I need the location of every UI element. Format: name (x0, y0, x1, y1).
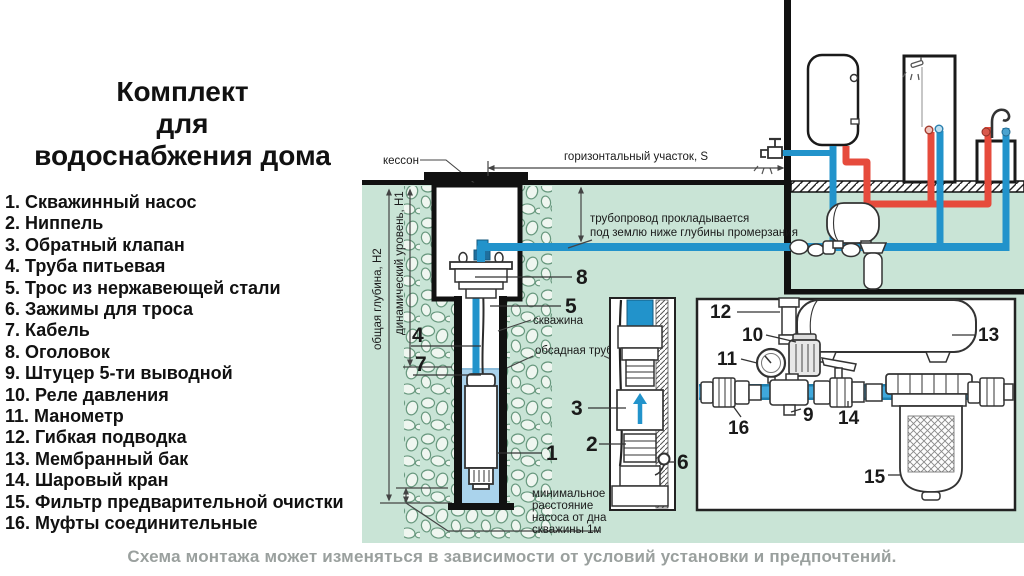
basement-bottom-line (784, 289, 1024, 295)
callout-3: 3 (571, 397, 583, 420)
well-bottom (448, 503, 514, 510)
caisson-label: кессон (383, 155, 419, 167)
inset-pump-top (620, 466, 660, 486)
pump-station-detail-panel: 12 10 11 13 16 9 14 15 (697, 298, 1015, 510)
footer-note: Схема монтажа может изменяться в зависим… (0, 547, 1024, 567)
callout-7: 7 (415, 353, 427, 376)
callout-11: 11 (717, 349, 738, 370)
inset-pipe (627, 300, 653, 326)
small-filter (860, 243, 886, 289)
callout-16: 16 (728, 418, 749, 439)
callout-15: 15 (864, 467, 886, 488)
outdoor-faucet-icon (754, 139, 782, 174)
page: Комплект для водоснабжения дома 1. Скваж… (0, 0, 1024, 576)
boiler (808, 55, 859, 145)
inset-coupling (618, 326, 662, 348)
min-distance-line2: расстояние (532, 500, 593, 512)
callout-1: 1 (546, 442, 558, 465)
horizontal-section-label: горизонтальный участок, S (564, 151, 708, 163)
callout-5: 5 (565, 295, 577, 318)
callout-10: 10 (742, 325, 763, 346)
callout-9: 9 (803, 405, 814, 426)
callout-6: 6 (677, 451, 689, 474)
callout-13: 13 (978, 325, 999, 346)
water-supply-diagram: общая глубина, Н2 динамический уровень, … (0, 0, 1024, 576)
dynamic-level-label: динамический уровень, Н1 (394, 191, 406, 335)
horizontal-section-dimension (488, 161, 783, 176)
well (448, 288, 514, 510)
min-distance-line4: скважины 1м (532, 524, 601, 536)
casing-pipe-label: обсадная труба (535, 345, 620, 357)
pump-cable (482, 292, 483, 378)
min-distance-line1: минимальное (532, 488, 605, 500)
small-membrane-tank (827, 203, 879, 248)
total-depth-label: общая глубина, Н2 (372, 248, 384, 350)
casing-right-wall (499, 296, 507, 505)
membrane-tank (797, 300, 976, 362)
callout-2: 2 (586, 433, 598, 456)
pump-top-inset (610, 298, 675, 510)
callout-4: 4 (412, 324, 424, 347)
submersible-pump (465, 374, 497, 489)
callout-12: 12 (710, 302, 731, 323)
frost-note-line1: трубопровод прокладывается (590, 213, 749, 225)
callout-14: 14 (838, 408, 860, 429)
inset-cable-clamp (659, 454, 670, 465)
gravel-under-well (404, 505, 552, 540)
pipe-nipple (866, 384, 882, 401)
casing-left-wall (454, 296, 462, 505)
frost-note-line2: под землю ниже глубины промерзания (590, 227, 798, 239)
callout-8: 8 (576, 266, 588, 289)
min-distance-line3: насоса от дна (532, 512, 607, 524)
